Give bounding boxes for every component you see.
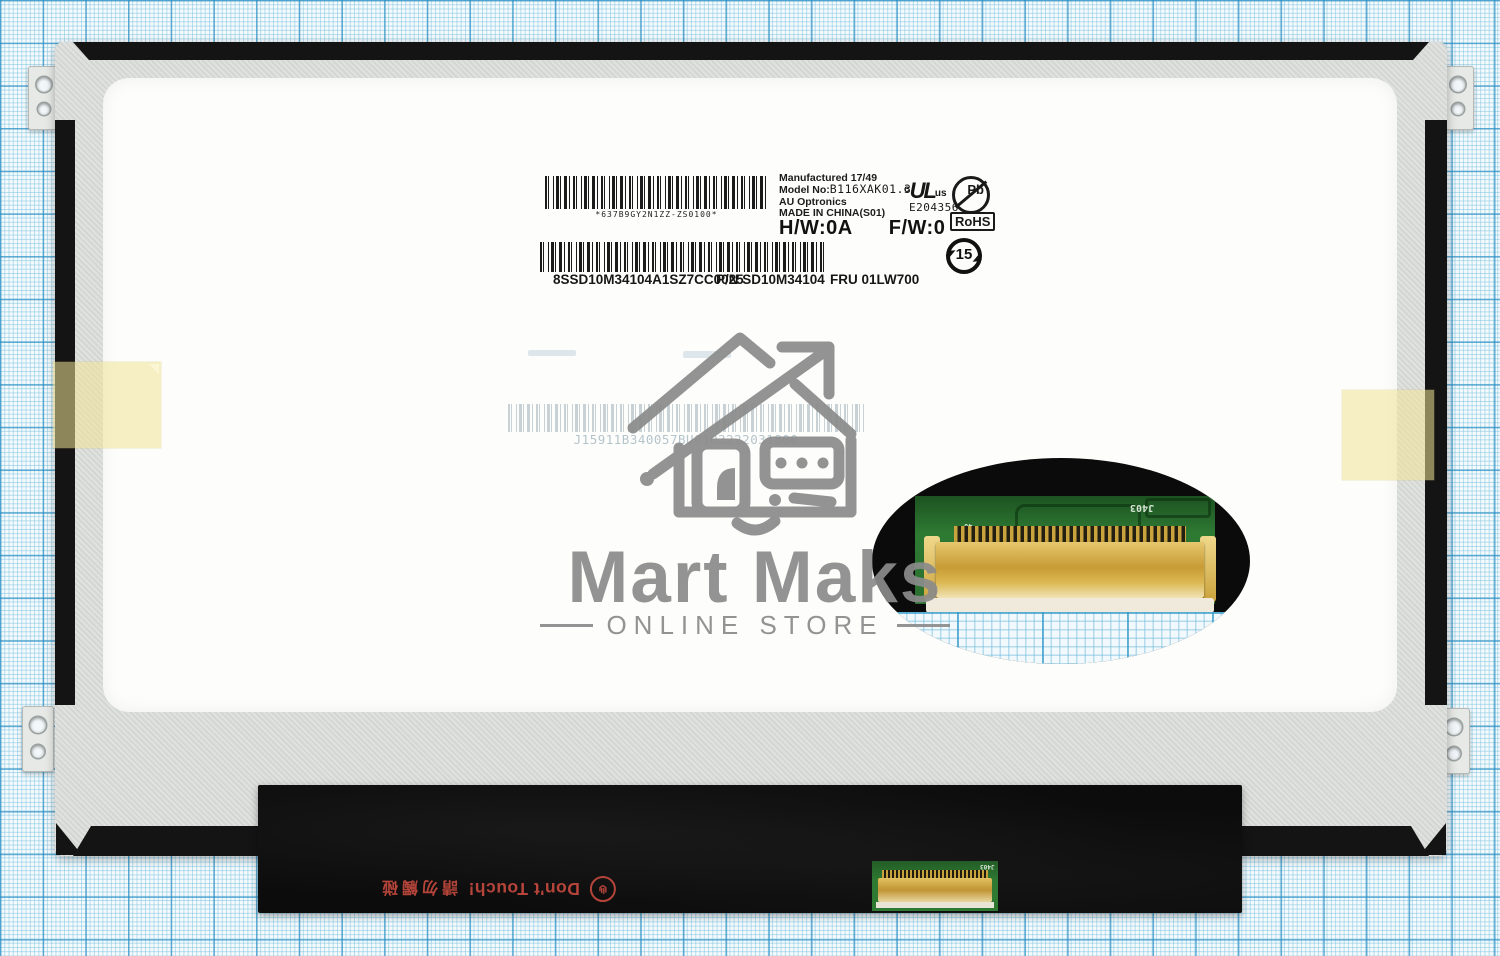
dont-touch-hand-icon <box>590 876 616 902</box>
pcb-trace <box>1145 498 1211 518</box>
panel-corner-wedge <box>56 823 82 855</box>
barcode-1-caption: *637B9GY2N1ZZ-ZS0100* <box>545 210 768 219</box>
graph-paper-background: *637B9GY2N1ZZ-ZS0100* Manufactured 17/49… <box>0 0 1500 956</box>
dont-touch-text: Don't Touch! <box>468 879 580 900</box>
screw-hole-icon <box>30 717 46 733</box>
label-model-line: Model No:B116XAK01.3 <box>779 184 911 196</box>
label-model-prefix: Model No: <box>779 184 830 196</box>
screw-hole-icon <box>38 103 50 115</box>
tape-left <box>53 362 161 448</box>
barcode-2 <box>540 242 827 272</box>
screw-hole-icon <box>1452 103 1464 115</box>
fru-number: FRU 01LW700 <box>830 272 919 287</box>
panel-corner-wedge <box>1420 823 1446 855</box>
china-rohs-recycle-icon: 15 <box>946 238 982 274</box>
tape-fold-corner <box>149 364 159 374</box>
connector-silkscreen-label: J403 <box>980 863 994 870</box>
connector-film-edge <box>876 902 994 908</box>
mounting-bracket-bottom-left <box>22 706 54 772</box>
ul-suffix: us <box>935 188 947 199</box>
faded-print-mark <box>683 351 731 358</box>
faded-print-mark <box>528 350 576 356</box>
label-hw: H/W:0A <box>779 217 853 239</box>
ul-monogram: UL <box>910 178 935 203</box>
pb-text: Pb <box>967 182 984 197</box>
screw-hole-icon <box>37 77 52 92</box>
rohs-badge: RoHS <box>950 212 995 231</box>
lcd-panel-back: *637B9GY2N1ZZ-ZS0100* Manufactured 17/49… <box>55 42 1447 856</box>
lead-free-icon: Pb <box>952 176 990 214</box>
screw-hole-icon <box>1446 719 1462 735</box>
screw-hole-icon <box>1448 747 1461 760</box>
connector-pcb: J403 <box>872 861 998 911</box>
connector-film-edge-closeup <box>926 598 1214 613</box>
connector-pins <box>882 870 988 878</box>
label-hw-fw-line: H/W:0AF/W:0 <box>779 217 945 240</box>
inset-graph-paper <box>872 612 1250 664</box>
connector-silkscreen-label: J403 <box>1130 502 1154 513</box>
barcode-1 <box>545 176 768 209</box>
connector-closeup-inset: J403 40 ® <box>872 458 1250 664</box>
panel-edge-top <box>73 42 1429 60</box>
label-fw: F/W:0 <box>889 217 946 239</box>
part-number: P/N SD10M34104 <box>716 272 825 287</box>
connector-pins-closeup <box>954 526 1186 542</box>
label-info-block: Manufactured 17/49 Model No:B116XAK01.3 … <box>779 173 911 219</box>
bottom-bezel-strip: Don't Touch! 請勿觸碰 J403 <box>258 785 1242 913</box>
tape-right <box>1342 390 1434 480</box>
dont-touch-text-cn: 請勿觸碰 <box>378 877 458 901</box>
dont-touch-warning: Don't Touch! 請勿觸碰 <box>378 873 616 905</box>
label-model-value: B116XAK01.3 <box>830 182 912 196</box>
faint-barcode <box>508 404 864 432</box>
screw-hole-icon <box>1451 77 1466 92</box>
screw-hole-icon <box>32 745 45 758</box>
edp-connector <box>878 878 992 902</box>
edp-connector-closeup <box>936 542 1204 598</box>
faint-barcode-caption: J15911B340057BU0103222031800 <box>508 432 864 447</box>
